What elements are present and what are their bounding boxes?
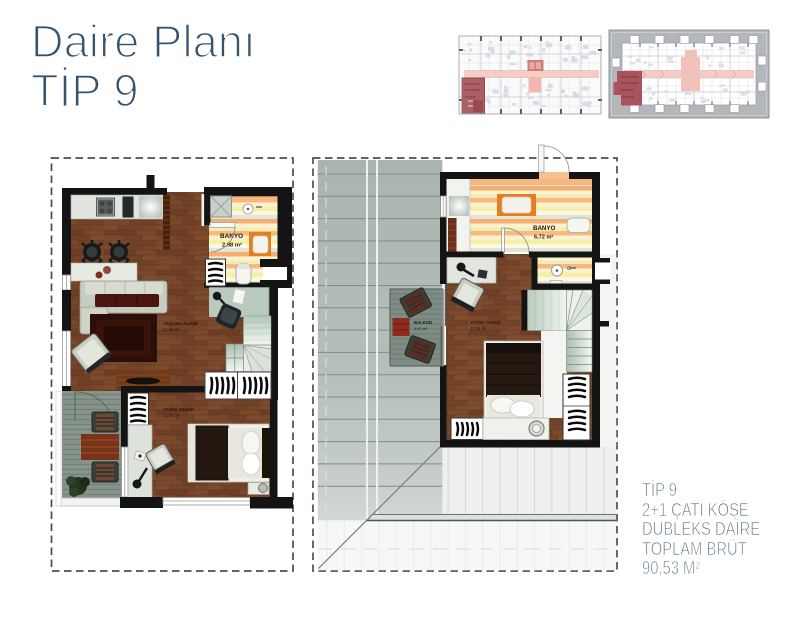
svg-text:YATAK ODASI: YATAK ODASI <box>163 407 194 412</box>
svg-text:11,39 m²: 11,39 m² <box>470 326 487 331</box>
svg-text:BANYO: BANYO <box>533 225 556 232</box>
svg-text:4,40 m²: 4,40 m² <box>414 326 428 331</box>
svg-text:21,55 m²: 21,55 m² <box>163 327 180 332</box>
svg-text:BALKON: BALKON <box>414 320 432 325</box>
svg-text:2,98 m²: 2,98 m² <box>222 242 242 249</box>
svg-text:11,20 m²: 11,20 m² <box>163 413 180 418</box>
svg-text:YAŞAMA ALANI: YAŞAMA ALANI <box>163 321 197 326</box>
svg-text:YATAK ODASI: YATAK ODASI <box>470 320 501 325</box>
svg-text:6,72 m²: 6,72 m² <box>534 234 553 241</box>
